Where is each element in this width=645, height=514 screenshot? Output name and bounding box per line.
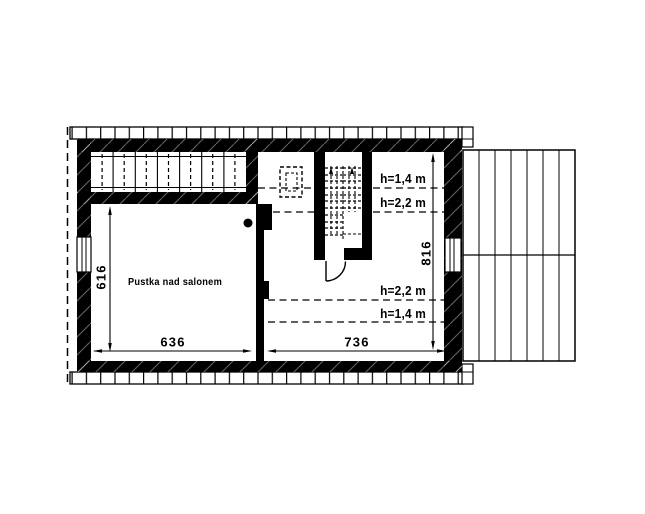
balcony-deck — [463, 150, 575, 361]
dimension-636: 636 — [160, 336, 185, 349]
staircase — [325, 166, 362, 240]
window-left — [77, 237, 91, 272]
dimension-816: 816 — [420, 240, 433, 265]
height-label-top-low: h=1,4 m — [380, 173, 426, 186]
height-label-top-high: h=2,2 m — [380, 197, 426, 210]
window-right — [445, 238, 461, 272]
chimney — [280, 167, 302, 197]
stair-door — [326, 261, 346, 281]
height-label-bottom-high: h=2,2 m — [380, 285, 426, 298]
floor-plan: Pustka nad salonem h=1,4 m h=2,2 m h=2,2… — [0, 0, 645, 514]
room-label: Pustka nad salonem — [128, 277, 222, 288]
column-dot — [244, 219, 253, 228]
dimension-736: 736 — [344, 336, 369, 349]
dimension-616: 616 — [95, 264, 108, 289]
floor-plan-drawing — [0, 0, 645, 514]
height-label-bottom-low: h=1,4 m — [380, 308, 426, 321]
skylight-band — [91, 152, 246, 192]
